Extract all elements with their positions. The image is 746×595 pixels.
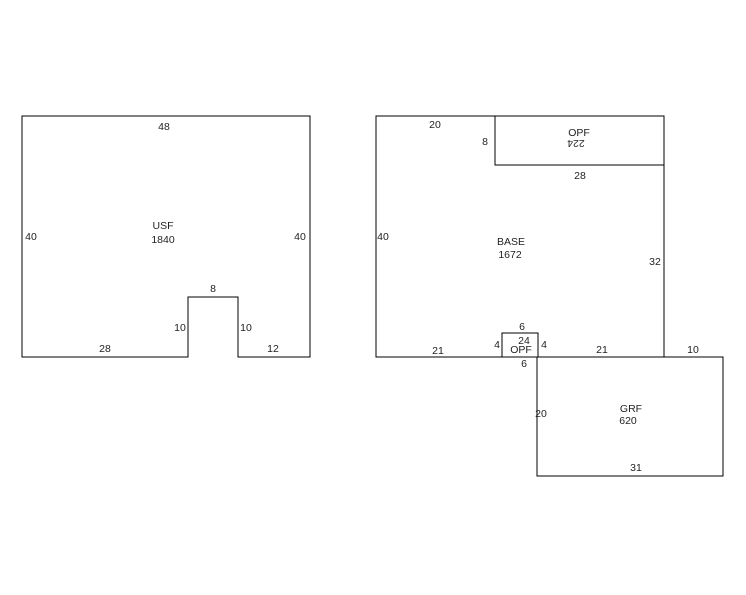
opf-small-dim-top: 6 — [519, 321, 525, 333]
base-dim-bottom-offset: 10 — [687, 344, 699, 356]
usf-dim-notch-right: 10 — [240, 322, 252, 334]
grf-label: GRF — [620, 403, 642, 415]
grf-dim-bottom: 31 — [630, 462, 642, 474]
base-dim-bottom-right: 21 — [596, 344, 608, 356]
base-area: 1672 — [498, 249, 522, 261]
opf-small-dim-bottom: 6 — [521, 358, 527, 370]
usf-area: 1840 — [151, 234, 175, 246]
base-dim-left: 40 — [377, 231, 389, 243]
usf-dim-right: 40 — [294, 231, 306, 243]
usf-dim-left: 40 — [25, 231, 37, 243]
opf-small-dim-right: 4 — [541, 339, 547, 351]
usf-dim-top: 48 — [158, 121, 170, 133]
base-dim-bottom-left: 21 — [432, 345, 444, 357]
base-dim-right: 32 — [649, 256, 661, 268]
usf-label: USF — [153, 220, 174, 232]
usf-dim-notch-left: 10 — [174, 322, 186, 334]
opf-top-dim-left: 8 — [482, 136, 488, 148]
sketch-canvas: 48 40 40 USF 1840 8 10 10 28 12 20 8 OPF… — [0, 0, 746, 595]
usf-dim-notch-top: 8 — [210, 283, 216, 295]
opf-small-dim-left: 4 — [494, 339, 500, 351]
opf-top-area: 224 — [567, 137, 585, 149]
usf-dim-bottom-left: 28 — [99, 343, 111, 355]
base-dim-top: 20 — [429, 119, 441, 131]
grf-dim-left: 20 — [535, 408, 547, 420]
floorplan-sketch: 48 40 40 USF 1840 8 10 10 28 12 20 8 OPF… — [0, 0, 746, 595]
grf-area: 620 — [619, 415, 637, 427]
opf-small-label: OPF — [510, 344, 532, 356]
opf-top-dim-bottom: 28 — [574, 170, 586, 182]
usf-dim-bottom-right: 12 — [267, 343, 279, 355]
base-label: BASE — [497, 236, 525, 248]
